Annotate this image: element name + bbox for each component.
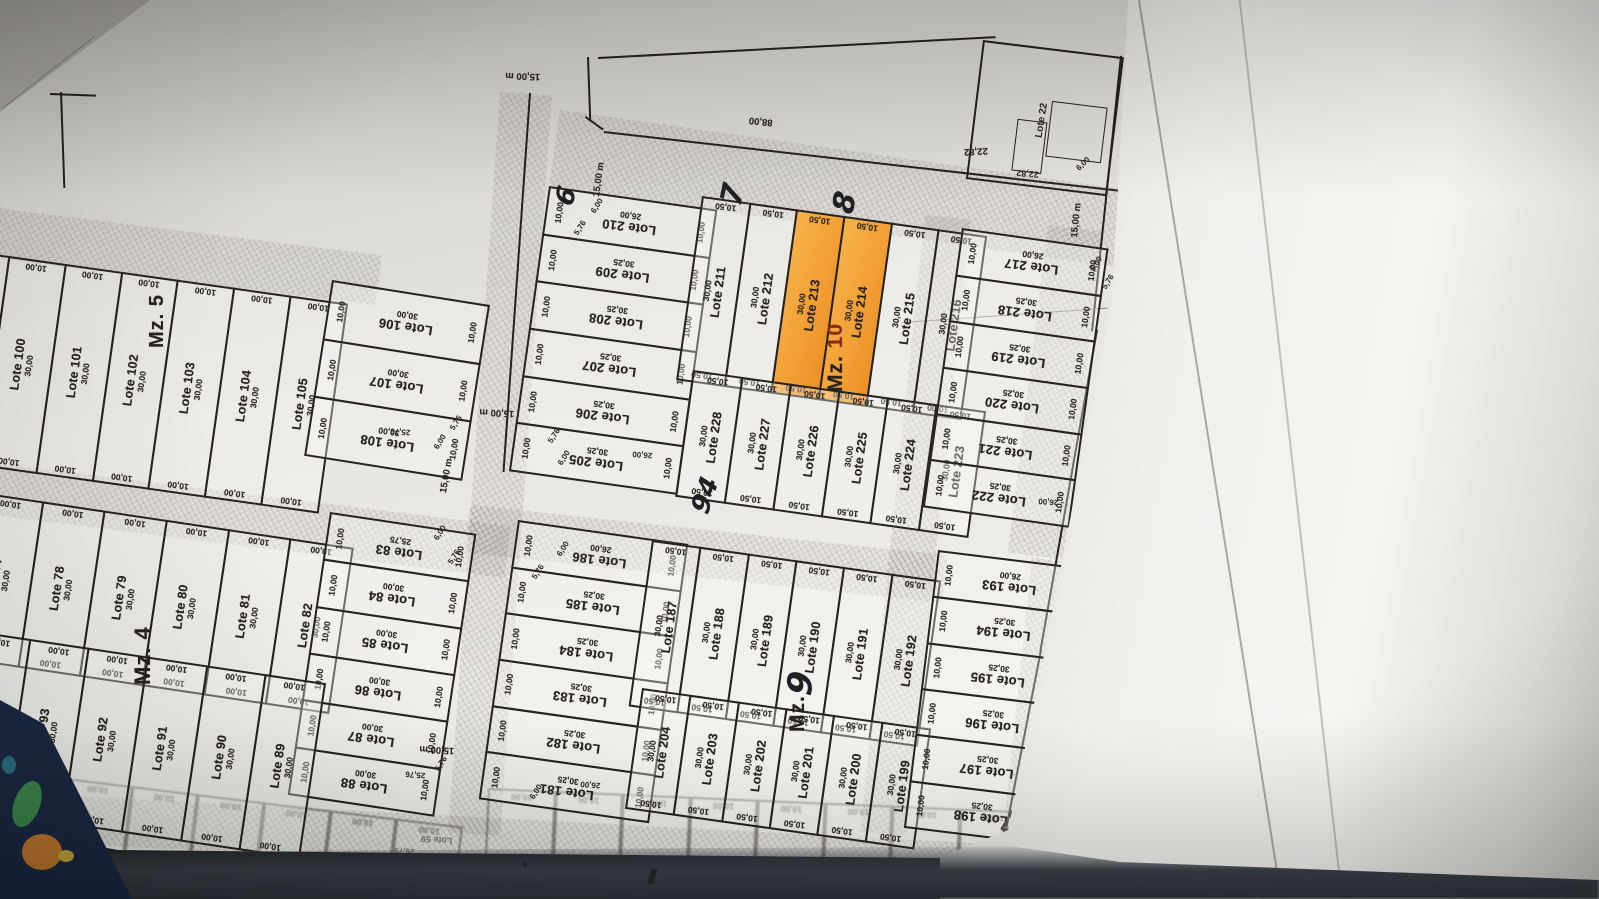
lot-width-dim: 10,00: [661, 457, 674, 479]
lot-width-dim: 10,00: [526, 390, 539, 412]
lot-width-dim: 10,50: [688, 805, 710, 818]
lot-label: Lote 7830,00: [48, 565, 76, 613]
lot-width-dim: 10,00: [250, 293, 272, 306]
plan-boundary-line: [50, 93, 96, 97]
lot-label: 30,00Lote 187: [651, 599, 679, 654]
lot-width-dim: 10,00: [0, 636, 11, 649]
lot-name: Lote 188: [707, 607, 727, 661]
lot-length-dim: 30,00: [136, 371, 148, 393]
lot-width-dim: 10,00: [489, 766, 502, 788]
lot-label: 30,00Lote 203: [692, 731, 720, 786]
plan-boundary-line: [598, 36, 996, 59]
lot-width-dim: 10,00: [439, 639, 452, 662]
lot-width-dim: 10,00: [1079, 306, 1092, 328]
lot-name: Lote 200: [844, 753, 864, 807]
lot-label: 30,00Lote 224: [889, 437, 917, 492]
lot-width-dim: 10,00: [432, 685, 445, 708]
lot-width-dim: 10,00: [418, 779, 431, 802]
lot-label: Lote 18626,00: [571, 541, 628, 571]
lot-length-dim: 30,00: [62, 579, 74, 601]
lot-label: Lote 22130,25: [977, 432, 1034, 462]
lot-name: Lote 211: [708, 266, 728, 319]
lot-width-dim: 10,50: [754, 382, 776, 395]
lot-length-dim: 30,00: [224, 748, 236, 770]
lot-width-dim: 10,00: [937, 610, 950, 632]
lot-label: Lote 10230,00: [121, 353, 149, 408]
lot-label: 30,00Lote 211: [699, 264, 727, 318]
lot-width-dim: 10,00: [47, 645, 70, 658]
lot-width-dim: 10,50: [760, 558, 782, 571]
lot-length-dim: 30,00: [23, 355, 35, 377]
lot-label: Lote 8130,00: [234, 593, 262, 641]
lot-name: Lote 213: [802, 279, 822, 333]
chamfer-dimension-label: 26,00: [580, 780, 601, 790]
lot-label: Lote 21026,00: [601, 207, 658, 237]
lot-label: Lote 8530,00: [361, 626, 411, 655]
lot-label: Lote 10730,00: [368, 365, 425, 396]
lot-label: Lote 8430,00: [368, 580, 418, 609]
lot-width-dim: 10,00: [334, 301, 347, 324]
lot-width-dim: 10,00: [519, 437, 532, 459]
lot-label: 30,00Lote 202: [740, 738, 768, 793]
lot-label: Lote 18330,25: [552, 680, 609, 710]
lot-name: Lote 227: [752, 418, 772, 472]
lot-width-dim: 10,00: [352, 816, 374, 829]
lot-label: Lote 18530,25: [565, 587, 622, 617]
lot-name: Lote 203: [701, 732, 721, 786]
lot-width-dim: 10,00: [546, 248, 559, 270]
lot-width-dim: 10,00: [502, 673, 515, 695]
lot-width-dim: 10,00: [496, 720, 509, 742]
lot-width-dim: 10,00: [165, 662, 188, 675]
lot-label: 30,00Lote 213: [794, 277, 822, 332]
chamfer-dimension-label: 25,76: [390, 427, 411, 437]
lot-width-dim: 10,00: [933, 474, 946, 496]
lot-length-dim: 30,00: [165, 739, 177, 761]
lot-length-dim: 30,00: [106, 730, 118, 752]
lot-width-dim: 10,00: [1059, 444, 1072, 466]
lot-width-dim: 10,50: [851, 395, 873, 408]
lot-label: Lote 18230,25: [545, 726, 602, 756]
chamfer-dimension-label: 26,00: [1038, 497, 1059, 507]
cover-orange-blob: [22, 834, 62, 870]
lot-width-dim: 10,00: [914, 794, 927, 816]
lot-length-dim: 30,00: [0, 570, 12, 592]
lot-width-dim: 10,50: [900, 402, 922, 415]
lot-name: Lote 201: [796, 746, 816, 800]
lot-label: Lote 21930,25: [990, 340, 1047, 370]
lot-name: Lote 212: [755, 272, 775, 326]
lot-length-dim: 30,00: [248, 386, 260, 408]
lot-width-dim: 10,00: [283, 680, 306, 693]
lot-label: Lote 8030,00: [172, 584, 200, 632]
lot-width-dim: 10,00: [25, 261, 47, 274]
lot-width-dim: 10,50: [933, 520, 955, 533]
lot-width-dim: 10,50: [706, 375, 728, 388]
chamfer-dimension-label: 25,76: [405, 770, 426, 780]
lot-label: Lote 19530,25: [970, 661, 1027, 690]
lot-label: Lote 18430,25: [558, 634, 615, 664]
lot-width-dim: 10,50: [884, 513, 906, 526]
lot-label: Lote 8930,00: [268, 743, 296, 791]
photo-of-plat-map: 10,0010,0010,0010,0010,0010,0010,0010,00…: [0, 0, 1599, 899]
lot-width-dim: 10,00: [465, 322, 478, 345]
lot-width-dim: 10,00: [920, 748, 933, 770]
lot-label: Lote 20730,25: [581, 349, 638, 379]
lot-width-dim: 10,00: [81, 269, 103, 282]
lot-width-dim: 10,00: [940, 428, 953, 450]
lot-length-dim: 30,00: [248, 607, 260, 629]
lot-width-dim: 10,00: [325, 359, 338, 382]
lot-label: 30,00Lote 188: [699, 606, 727, 661]
lot-width-dim: 10,00: [167, 479, 189, 492]
lot-width-dim: 10,00: [509, 627, 522, 649]
lot-width-dim: 10,50: [655, 693, 677, 706]
lot-label: 30,00Lote 191: [842, 626, 870, 681]
lot-label: Lote 21726,00: [1003, 247, 1060, 277]
lot-label: Lote 20930,25: [595, 255, 652, 285]
lot-label: Lote 20830,25: [588, 302, 645, 332]
lot-width-dim: 10,50: [750, 706, 772, 719]
lot-width-dim: 10,00: [539, 296, 552, 318]
lot-width-dim: 10,00: [54, 464, 76, 477]
lot-width-dim: 10,00: [522, 535, 535, 557]
building-footprint-large: [1045, 101, 1107, 163]
lot-label: Lote 20530,25: [568, 444, 625, 474]
lot-width-dim: 10,00: [326, 574, 339, 597]
lot-width-dim: 10,00: [223, 487, 245, 500]
lot-width-dim: 10,00: [953, 335, 966, 357]
lot-width-dim: 10,00: [123, 517, 146, 530]
lot-label: Lote 8830,00: [340, 767, 390, 796]
block-label-mz4: Mz. 4: [130, 626, 156, 685]
lot-name: Lote 190: [803, 621, 823, 675]
lot-width-dim: 10,00: [141, 823, 164, 836]
lot-name: Lote 189: [755, 614, 775, 668]
lot-width-dim: 10,50: [702, 700, 724, 713]
lot-label: Lote 8325,75: [375, 533, 425, 562]
lot-width-dim: 10,50: [856, 572, 878, 585]
lot-length-dim: 30,00: [124, 588, 136, 610]
lot-label: Lote 10630,00: [378, 307, 435, 338]
lot-label: 30,00Lote 225: [841, 430, 869, 485]
lot-width-dim: 10,50: [809, 214, 831, 227]
lot-length-dim: 30,00: [192, 378, 204, 400]
lot-label: Lote 19730,25: [959, 753, 1016, 782]
lot-width-dim: 10,00: [62, 507, 85, 520]
lot-label: Lote 7930,00: [110, 574, 138, 622]
plat-paper: 10,0010,0010,0010,0010,0010,0010,0010,00…: [0, 0, 1160, 899]
lot-width-dim: 10,50: [894, 727, 916, 740]
lot-name: Lote 204: [653, 726, 673, 780]
lot-label: 30,00Lote 201: [788, 745, 816, 800]
lot-width-dim: 10,00: [446, 592, 459, 615]
lot-length-dim: 30,00: [186, 597, 198, 619]
block-label-mz5: Mz. 5: [146, 294, 169, 348]
block-label-mz10: Mz. 10: [824, 323, 848, 392]
lot-name: Lote 228: [704, 411, 724, 465]
lot-label: 30,00Lote 228: [695, 410, 723, 465]
lot-width-dim: 10,50: [761, 208, 783, 221]
lot-width-dim: 10,00: [966, 243, 979, 265]
lot-label: Lote 7730,00: [0, 556, 13, 604]
lot-label: 30,00Lote 215: [888, 291, 916, 346]
lot-label: Lote 10430,00: [234, 369, 262, 424]
lot-width-dim: 10,50: [739, 493, 761, 506]
lot-name: Lote 226: [801, 424, 821, 478]
lot-width-dim: 10,00: [946, 381, 959, 403]
plan-boundary-line: [587, 57, 591, 121]
lot-width-dim: 10,00: [200, 831, 223, 844]
block-label-mz9: Mz.: [786, 695, 810, 732]
lot-width-dim: 10,00: [307, 301, 329, 314]
lot-label: Lote 19326,00: [981, 569, 1038, 598]
lot-width-dim: 10,00: [247, 535, 270, 548]
lot-width-dim: 10,50: [640, 798, 662, 811]
lot-width-dim: 10,50: [904, 579, 926, 592]
debris-speck: [523, 862, 527, 867]
lot-label: 30,00Lote 190: [795, 619, 823, 674]
lot-name: Lote 187: [660, 600, 680, 654]
lot-label: 30,00Lote 226: [792, 423, 820, 478]
mz10-prefix: Mz.: [824, 348, 847, 392]
faint-lot-name: Lote 59: [421, 834, 453, 846]
lot-label: Lote 22030,25: [984, 386, 1041, 416]
lot-width-dim: 10,50: [903, 227, 925, 240]
lot-label: 30,00Lote 204: [644, 725, 672, 780]
plan-boundary-line: [60, 92, 65, 188]
lot-width-dim: 10,00: [224, 671, 247, 684]
lot-label: 30,00Lote 227: [744, 416, 772, 471]
lot-width-dim: 10,00: [1066, 398, 1079, 420]
lot-width-dim: 10,50: [879, 832, 901, 845]
lot-dim: 22,82: [1016, 168, 1039, 180]
lot-width-dim: 10,00: [456, 380, 469, 403]
street-dimension-label: 15,00 m: [479, 406, 514, 419]
lot-label: Lote 10030,00: [8, 338, 36, 393]
lot-width-dim: 10,50: [712, 552, 734, 565]
lot-name: Lote 192: [899, 634, 919, 688]
lot-width-dim: 10,00: [0, 498, 22, 511]
lot-width-dim: 10,00: [515, 581, 528, 603]
lot-label: Lote 10130,00: [65, 345, 93, 400]
lot-name: Lote 224: [898, 438, 918, 492]
lot-name: Lote 202: [748, 739, 768, 793]
lot-width-dim: 10,00: [185, 526, 208, 539]
street-dimension-label: 15,00 m: [419, 743, 454, 756]
lot-width-dim: 10,50: [846, 720, 868, 733]
lot-label: Lote 21830,25: [997, 294, 1054, 324]
lot-width-dim: 10,50: [787, 500, 809, 513]
lot-width-dim: 10,00: [1072, 352, 1085, 374]
lot-label: 30,00Lote 192: [890, 633, 918, 688]
lot-label: Lote 9230,00: [91, 716, 119, 764]
lot-label: Lote 19630,25: [964, 707, 1021, 736]
lot-width-dim: 10,00: [110, 471, 132, 484]
lot-width-dim: 10,00: [931, 656, 944, 678]
lot-label: 30,00Lote 189: [747, 613, 775, 668]
street-dimension-label: 88,00: [748, 115, 773, 128]
street-dimension-label: 15,00 m: [505, 70, 540, 82]
lot-width-dim: 10,50: [856, 221, 878, 234]
lot-width-dim: 10,50: [665, 545, 687, 558]
lot-label: Lote 9130,00: [150, 725, 178, 773]
lot-name: Lote 191: [851, 627, 871, 681]
lot-width-dim: 10,00: [279, 495, 301, 508]
lot-label: Lote 8730,00: [347, 720, 397, 749]
lot-label: Lote 8630,00: [354, 673, 404, 702]
mz10-number: 10: [824, 323, 847, 348]
lot-width-dim: 10,00: [319, 621, 332, 644]
lot-label: 30,00Lote 200: [836, 751, 864, 806]
chamfer-dimension-label: 26,00: [632, 450, 653, 460]
cover-teal-blob: [2, 756, 16, 774]
block-a_col: Lote 10630,0010,0010,00Lote 10730,0010,0…: [304, 280, 490, 481]
lot-width-dim: 10,50: [803, 389, 825, 402]
cover-yellow-blob: [58, 850, 74, 862]
lot-width-dim: 10,00: [194, 285, 216, 298]
lot-width-dim: 10,50: [808, 565, 830, 578]
lot-width-dim: 10,00: [447, 437, 460, 460]
lot-width-dim: 10,00: [667, 410, 680, 432]
lot-name: Lote 225: [849, 431, 869, 485]
lot-label: Lote 20630,25: [575, 396, 632, 426]
lot-label: Lote 19430,25: [976, 615, 1033, 644]
lot-width-dim: 10,00: [0, 456, 20, 469]
lot-width-dim: 10,00: [106, 654, 129, 667]
lot-length-dim: 30,00: [80, 363, 92, 385]
lot-width-dim: 10,00: [138, 277, 160, 290]
lot-width-dim: 10,00: [333, 527, 346, 550]
lot-label: Lote 9030,00: [209, 734, 237, 782]
lot-width-dim: 10,00: [316, 417, 329, 440]
lot-name: Lote 215: [897, 292, 917, 346]
lot-label: 30,00Lote 212: [747, 271, 775, 326]
lot-width-dim: 10,00: [533, 343, 546, 365]
lot-width-dim: 10,50: [831, 825, 853, 838]
cover-green-blob: [7, 777, 48, 831]
lot-label: Lote 22230,25: [971, 479, 1028, 509]
lot-width-dim: 10,50: [783, 818, 805, 831]
lot-width-dim: 10,00: [959, 289, 972, 311]
lot-width-dim: 10,00: [942, 564, 955, 586]
lot-width-dim: 10,50: [736, 811, 758, 824]
lot-length-dim: 30,00: [283, 756, 295, 778]
lot-label: Lote 10330,00: [177, 361, 205, 416]
lot-width-dim: 10,50: [836, 506, 858, 519]
lot-name: Lote 214: [850, 285, 870, 339]
lot-22-parcel: Lote 22 22,82 6,00: [966, 40, 1124, 196]
lot-width-dim: 10,00: [925, 702, 938, 724]
